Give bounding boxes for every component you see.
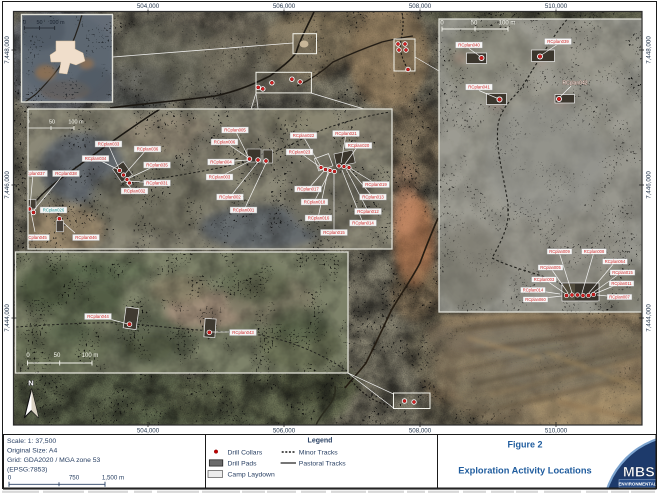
svg-text:Drill Collars: Drill Collars — [228, 450, 263, 457]
svg-text:510,000: 510,000 — [545, 428, 568, 435]
svg-text:Scale: 1: 37,500: Scale: 1: 37,500 — [7, 438, 56, 445]
svg-text:RCplan041: RCplan041 — [468, 85, 490, 90]
svg-text:Legend: Legend — [308, 438, 333, 445]
svg-text:(EPSG:7853): (EPSG:7853) — [7, 467, 47, 474]
svg-text:RCplan064: RCplan064 — [605, 259, 626, 264]
svg-text:RCplan013: RCplan013 — [362, 195, 384, 200]
svg-text:Grid: GDA2020 / MGA zone 53: Grid: GDA2020 / MGA zone 53 — [7, 457, 101, 464]
svg-text:RCplan011: RCplan011 — [611, 281, 632, 286]
svg-text:506,000: 506,000 — [273, 428, 296, 435]
svg-text:RCplan012: RCplan012 — [357, 209, 379, 214]
svg-text:RCplan032: RCplan032 — [124, 189, 146, 194]
svg-text:7,446,000: 7,446,000 — [4, 171, 11, 199]
svg-text:100 m: 100 m — [82, 353, 99, 359]
svg-text:510,000: 510,000 — [545, 3, 568, 10]
svg-text:RCplan035: RCplan035 — [146, 163, 168, 168]
svg-text:RCplan014: RCplan014 — [523, 288, 544, 293]
svg-text:RCplan039: RCplan039 — [547, 39, 569, 44]
svg-text:7,444,000: 7,444,000 — [4, 304, 11, 332]
svg-text:508,000: 508,000 — [409, 428, 432, 435]
svg-text:0: 0 — [23, 20, 26, 26]
svg-text:RCplan003: RCplan003 — [209, 175, 231, 180]
svg-text:7,446,000: 7,446,000 — [646, 171, 653, 199]
svg-text:100 m: 100 m — [49, 20, 65, 26]
svg-text:RCplan008: RCplan008 — [584, 249, 605, 254]
svg-text:RCplan001: RCplan001 — [233, 208, 255, 213]
svg-text:RCplan038: RCplan038 — [55, 171, 77, 176]
svg-text:RCplan003: RCplan003 — [534, 277, 555, 282]
svg-text:Minor Tracks: Minor Tracks — [299, 450, 339, 457]
svg-text:Figure 2: Figure 2 — [507, 440, 542, 450]
svg-text:RCplan033: RCplan033 — [98, 142, 120, 147]
svg-text:RCplan026: RCplan026 — [43, 208, 65, 213]
svg-text:RCplan002: RCplan002 — [219, 195, 241, 200]
svg-text:RCplan060: RCplan060 — [525, 297, 546, 302]
svg-text:RCplan015: RCplan015 — [323, 230, 345, 235]
svg-text:50: 50 — [471, 21, 478, 27]
svg-text:RCplan005: RCplan005 — [540, 265, 561, 270]
svg-text:508,000: 508,000 — [409, 3, 432, 10]
svg-text:RCplan007: RCplan007 — [609, 295, 630, 300]
svg-text:RCplan017: RCplan017 — [297, 187, 319, 192]
svg-text:RCplan018: RCplan018 — [304, 200, 326, 205]
svg-text:Camp Laydown: Camp Laydown — [228, 472, 275, 479]
svg-text:RCplan021: RCplan021 — [335, 131, 357, 136]
svg-text:RCplan005: RCplan005 — [224, 128, 246, 133]
svg-text:RCplan015: RCplan015 — [612, 270, 633, 275]
svg-text:RCplan036: RCplan036 — [137, 147, 159, 152]
svg-text:50: 50 — [54, 353, 61, 359]
svg-text:7,444,000: 7,444,000 — [646, 304, 653, 332]
svg-text:RCplan023: RCplan023 — [289, 150, 311, 155]
svg-text:RCplan014: RCplan014 — [352, 221, 374, 226]
svg-text:750: 750 — [69, 475, 80, 482]
svg-text:RCplan020: RCplan020 — [348, 143, 370, 148]
svg-text:RCplan046: RCplan046 — [75, 235, 97, 240]
svg-text:Exploration Activity Locations: Exploration Activity Locations — [458, 466, 591, 476]
svg-text:RCplan022: RCplan022 — [293, 133, 315, 138]
svg-text:50: 50 — [36, 20, 42, 26]
svg-text:7,448,000: 7,448,000 — [646, 36, 653, 64]
svg-text:100 m: 100 m — [68, 120, 84, 126]
svg-text:506,000: 506,000 — [273, 3, 296, 10]
svg-text:7,448,000: 7,448,000 — [4, 36, 11, 64]
svg-text:RCplan006: RCplan006 — [214, 140, 236, 145]
svg-text:504,000: 504,000 — [137, 3, 160, 10]
svg-text:RCplan004: RCplan004 — [210, 160, 232, 165]
svg-text:0: 0 — [8, 475, 12, 482]
svg-text:1,500 m: 1,500 m — [102, 475, 124, 482]
svg-text:RCplan019: RCplan019 — [365, 182, 387, 187]
svg-text:Drill Pads: Drill Pads — [228, 460, 258, 467]
svg-text:N: N — [28, 379, 33, 388]
svg-text:Original Size: A4: Original Size: A4 — [7, 448, 57, 455]
svg-text:RCplan042: RCplan042 — [562, 81, 587, 87]
svg-text:504,000: 504,000 — [137, 428, 160, 435]
svg-text:RCplan034: RCplan034 — [85, 156, 107, 161]
svg-text:RCplan009: RCplan009 — [549, 249, 570, 254]
svg-text:Pastoral Tracks: Pastoral Tracks — [299, 460, 346, 467]
svg-text:ENVIRONMENTAL: ENVIRONMENTAL — [619, 482, 657, 487]
svg-text:RCplan016: RCplan016 — [308, 216, 330, 221]
svg-text:RCplan044: RCplan044 — [87, 314, 109, 319]
svg-text:50: 50 — [49, 120, 55, 126]
svg-text:RCplan043: RCplan043 — [232, 330, 254, 335]
svg-text:100 m: 100 m — [499, 21, 516, 27]
svg-text:RCplan040: RCplan040 — [458, 43, 480, 48]
svg-text:RCplan031: RCplan031 — [146, 181, 168, 186]
svg-text:MBS: MBS — [623, 464, 655, 480]
